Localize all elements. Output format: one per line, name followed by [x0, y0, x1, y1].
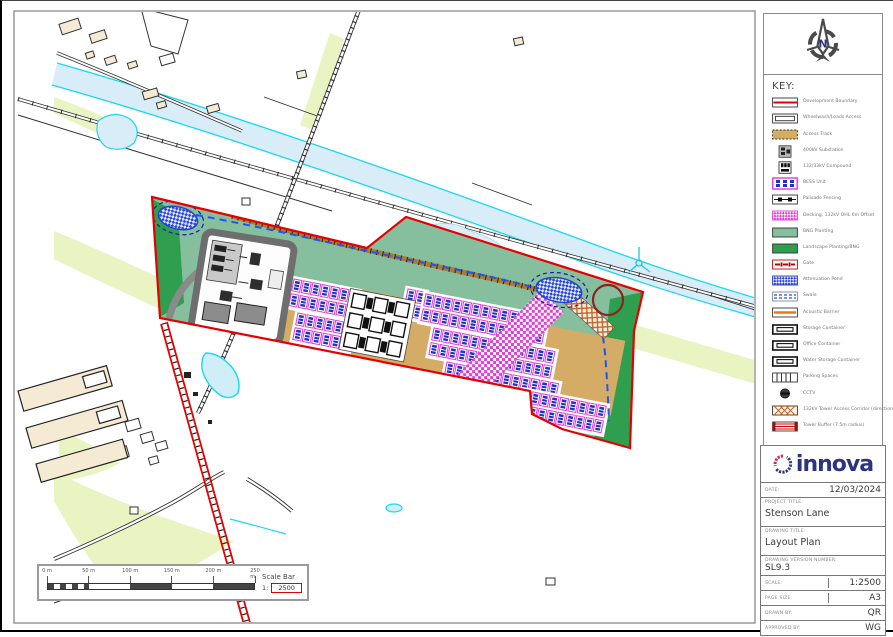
- key-item: 132kV Tower Access Corridor (directional…: [772, 404, 882, 417]
- key-item: Tower Buffer (7.5m radius): [772, 420, 882, 433]
- key-swatch-bluecheck: [772, 274, 798, 287]
- key-item: Water Storage Container: [772, 355, 882, 368]
- key-swatch-swale: [772, 290, 798, 303]
- logo-text: innova: [796, 452, 873, 477]
- scale-label: SCALE:: [765, 581, 782, 586]
- scale-bar: 0 m50 m100 m150 m200 m250 m Scale Bar 1:…: [37, 564, 309, 601]
- key-item-label: Water Storage Container: [803, 359, 860, 364]
- key-item: 400kV Substation: [772, 145, 882, 158]
- key-item-label: 132kV Tower Access Corridor (directional…: [803, 408, 893, 413]
- north-arrow-icon: N: [796, 17, 850, 71]
- site-plan-map: [2, 1, 758, 633]
- scale-bar-labels: 0 m50 m100 m150 m200 m250 m: [47, 568, 255, 576]
- key-item-label: Palisade Fencing: [803, 197, 841, 202]
- key-swatch-palisade: [772, 193, 798, 206]
- page-size-value: A3: [828, 593, 881, 603]
- key-item-label: Gate: [803, 262, 814, 267]
- date-value: 12/03/2024: [829, 485, 881, 495]
- approved-by-label: APPROVED BY:: [765, 626, 801, 631]
- key-item: Access Track: [772, 128, 882, 141]
- key-item: Attenuation Pond: [772, 274, 882, 287]
- key-item: BNG Planting: [772, 226, 882, 239]
- key-item-label: 132/33kV Compound: [803, 165, 851, 170]
- title-panel: N KEY: Development BoundaryWheelwash/Loa…: [760, 9, 888, 629]
- key-swatch-parking: [772, 371, 798, 384]
- scale-bar-segments: [47, 583, 255, 590]
- scale-tick-label: 0 m: [42, 568, 52, 574]
- key-swatch-container: [772, 323, 798, 336]
- key-item: Acoustic Barrier: [772, 306, 882, 319]
- scale-tick-label: 50 m: [82, 568, 95, 574]
- key-item: Office Container: [772, 339, 882, 352]
- key-swatch-magcheck: [772, 209, 798, 222]
- key-item-label: Attenuation Pond: [803, 278, 843, 283]
- drawn-by-label: DRAWN BY:: [765, 611, 792, 616]
- key-legend: KEY: Development BoundaryWheelwash/Loads…: [763, 75, 883, 447]
- scale-tick-label: 100 m: [122, 568, 138, 574]
- key-item-label: Development Boundary: [803, 100, 858, 105]
- key-item-label: CCTV: [803, 392, 815, 397]
- key-swatch-lightgreen: [772, 226, 798, 239]
- scale-tick-label: 200 m: [205, 568, 221, 574]
- key-item: Swale: [772, 290, 882, 303]
- scale-bar-title: Scale Bar: [262, 573, 307, 581]
- title-block: innova DATE: 12/03/2024 PROJECT TITLE: S…: [760, 445, 886, 636]
- key-item-label: Acoustic Barrier: [803, 311, 839, 316]
- key-item-label: 400kV Substation: [803, 149, 844, 154]
- key-item: BESS Unit: [772, 177, 882, 190]
- key-swatch-acoustic: [772, 306, 798, 319]
- key-swatch-cctv: [772, 387, 798, 400]
- key-swatch-double: [772, 112, 798, 125]
- key-swatch-container: [772, 355, 798, 368]
- key-item-label: Storage Container: [803, 327, 845, 332]
- key-item: Wheelwash/Loads Access: [772, 112, 882, 125]
- key-item-label: Swale: [803, 294, 817, 299]
- key-item-label: Office Container: [803, 343, 840, 348]
- project-title-value: Stenson Lane: [765, 505, 881, 524]
- key-item-label: Wheelwash/Loads Access: [803, 116, 861, 121]
- logo: innova: [761, 446, 885, 483]
- key-item-label: Decking, 132kV OHL 6m Offset: [803, 214, 874, 219]
- key-swatch-boundary: [772, 96, 798, 109]
- key-swatch-gate: [772, 258, 798, 271]
- key-item: Development Boundary: [772, 96, 882, 109]
- key-swatch-bess: [772, 177, 798, 190]
- drawn-by-value: QR: [868, 608, 881, 618]
- key-item: Palisade Fencing: [772, 193, 882, 206]
- key-item: Parking Spaces: [772, 371, 882, 384]
- key-item-label: BESS Unit: [803, 181, 826, 186]
- innova-logo-icon: [773, 454, 793, 474]
- map-canvas: 0 m50 m100 m150 m200 m250 m Scale Bar 1:…: [2, 1, 758, 633]
- key-swatch-container: [772, 339, 798, 352]
- key-swatch-darkgreen: [772, 242, 798, 255]
- scale-ratio-prefix: 1:: [262, 584, 268, 592]
- key-swatch-compound: [772, 161, 798, 174]
- key-item-label: Access Track: [803, 133, 832, 138]
- key-swatch-substation: [772, 145, 798, 158]
- key-title: KEY:: [772, 81, 882, 92]
- scale-value: 1:2500: [828, 578, 881, 588]
- key-item-label: Tower Buffer (7.5m radius): [803, 424, 864, 429]
- svg-text:N: N: [818, 38, 827, 51]
- date-label: DATE:: [765, 488, 780, 493]
- scale-ratio-value: 2500: [271, 583, 302, 593]
- key-item-label: BNG Planting: [803, 230, 833, 235]
- key-item: Decking, 132kV OHL 6m Offset: [772, 209, 882, 222]
- compass-box: N: [763, 13, 883, 75]
- key-item: CCTV: [772, 387, 882, 400]
- key-item: Storage Container: [772, 323, 882, 336]
- compound-13233kv: [339, 288, 416, 361]
- key-item-label: Parking Spaces: [803, 375, 838, 380]
- scale-tick-label: 150 m: [164, 568, 180, 574]
- key-swatch-redhatch: [772, 420, 798, 433]
- key-swatch-track: [772, 128, 798, 141]
- drawing-title-value: Layout Plan: [765, 534, 881, 553]
- key-item: Gate: [772, 258, 882, 271]
- version-value: SL9.3: [765, 563, 881, 573]
- key-item: Landscape Planting/BNG: [772, 242, 882, 255]
- page-size-label: PAGE SIZE:: [765, 596, 792, 601]
- key-item-label: Landscape Planting/BNG: [803, 246, 860, 251]
- key-item: 132/33kV Compound: [772, 161, 882, 174]
- key-swatch-xhatch: [772, 404, 798, 417]
